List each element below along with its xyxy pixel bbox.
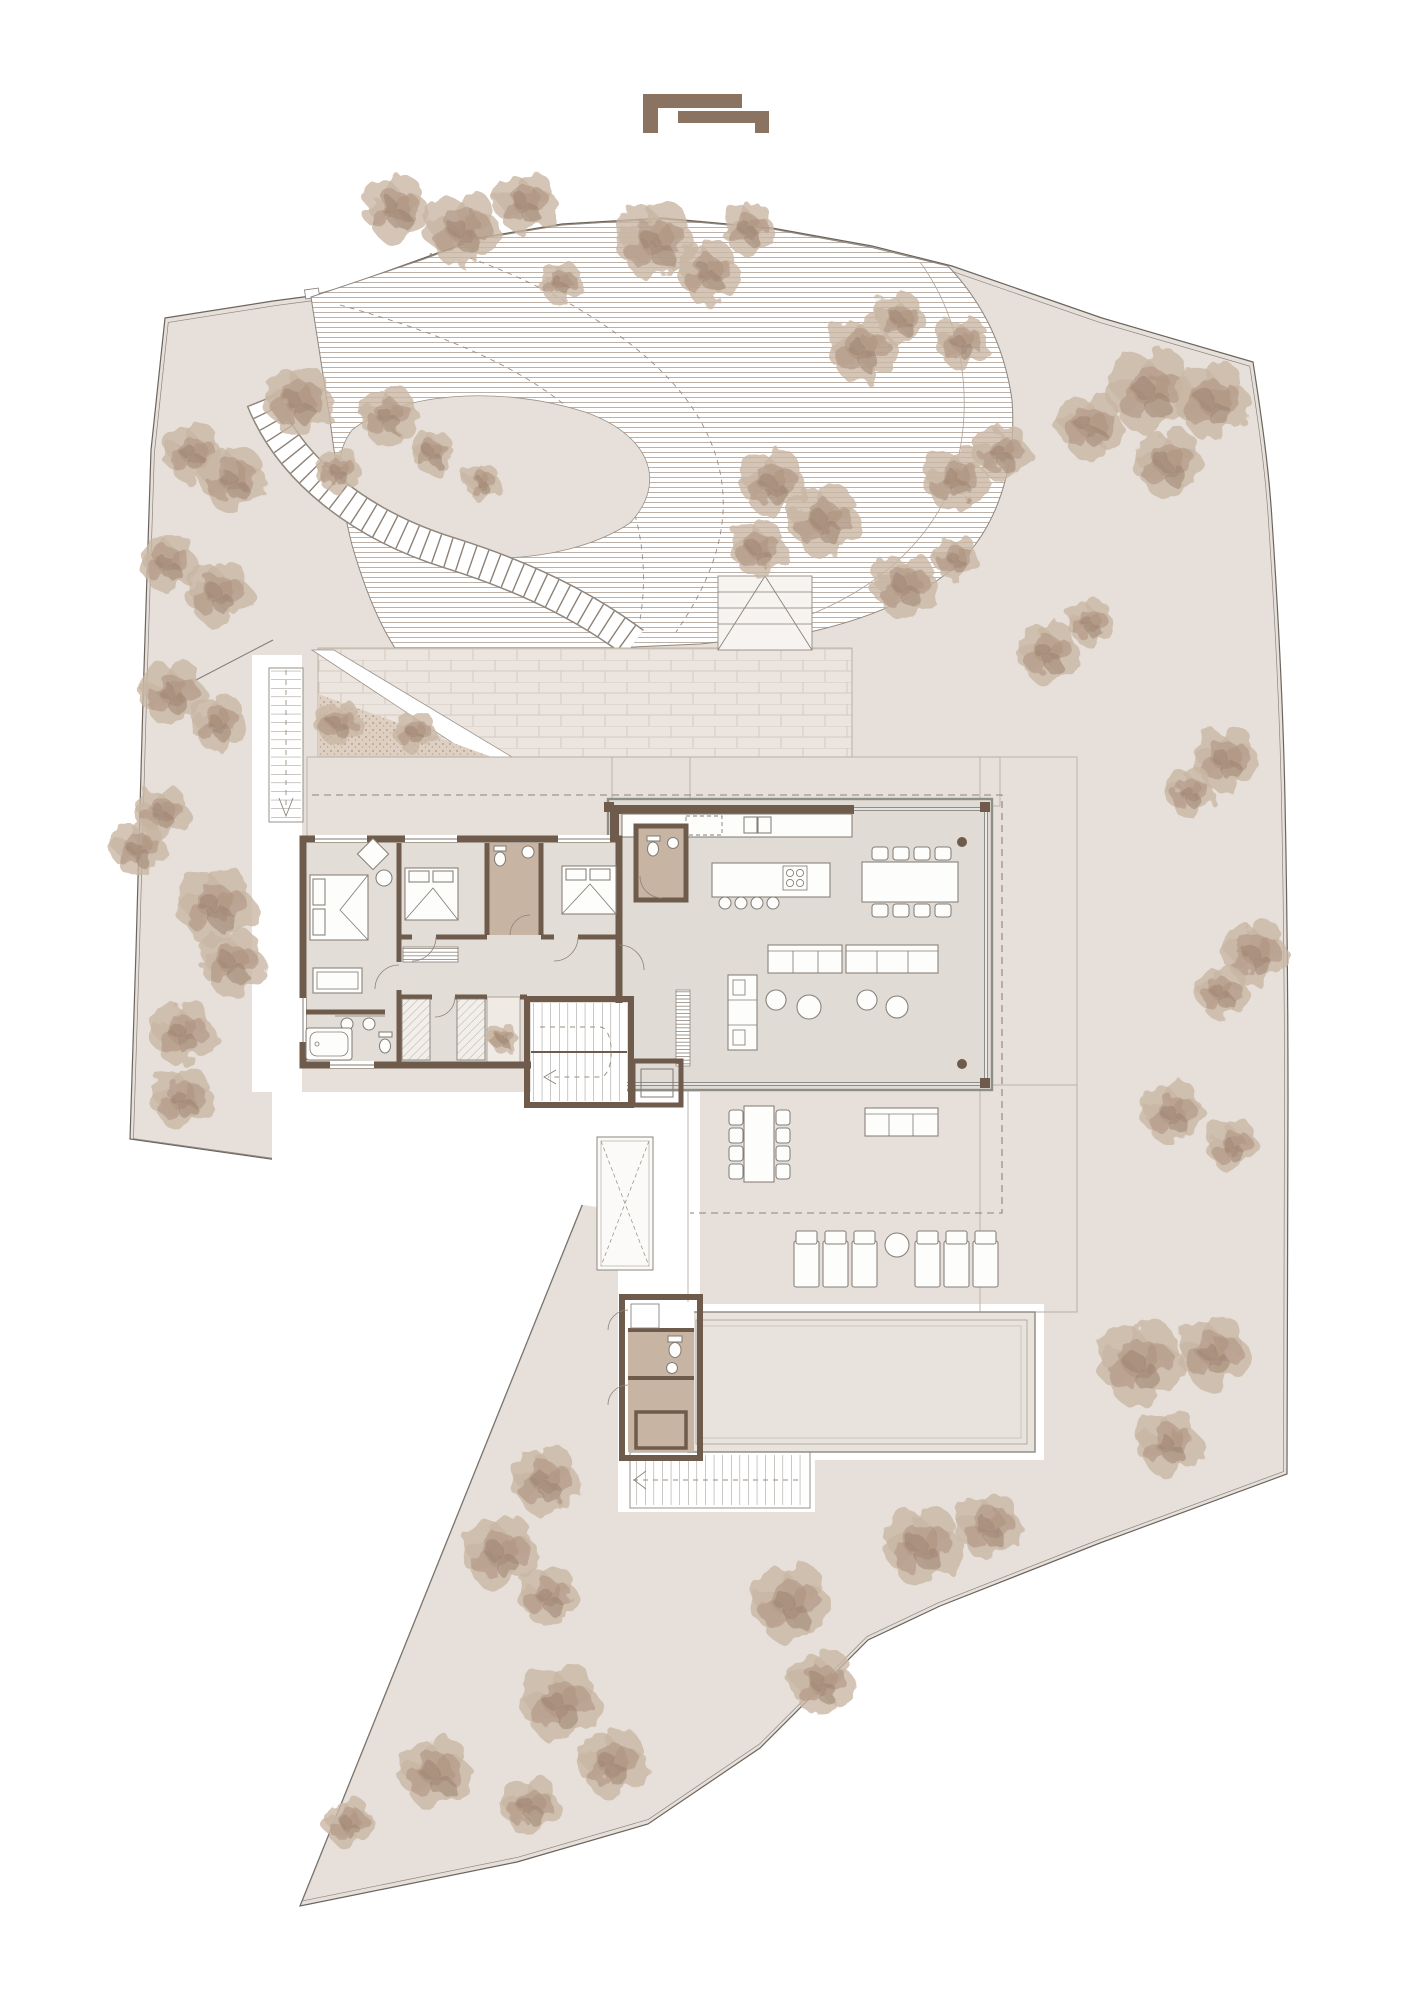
pouf	[766, 990, 786, 1010]
chair	[729, 1110, 743, 1125]
chair	[776, 1164, 790, 1179]
kitchen-sink	[758, 817, 771, 833]
sink-icon	[667, 1363, 678, 1374]
louver-screen	[676, 990, 690, 1066]
toilet-icon	[648, 842, 659, 856]
sun-lounger	[794, 1231, 819, 1287]
chair	[914, 847, 930, 860]
pouf	[886, 996, 908, 1018]
chair	[729, 1146, 743, 1161]
wardrobe	[457, 999, 485, 1060]
chair	[935, 904, 951, 917]
chair	[729, 1128, 743, 1143]
indoor-dining-table	[862, 862, 958, 902]
tree	[494, 172, 559, 235]
chair	[776, 1128, 790, 1143]
column	[957, 1059, 967, 1069]
floor-plan-drawing	[0, 0, 1414, 2000]
toilet-icon	[380, 1039, 391, 1053]
sofa-group	[768, 945, 938, 973]
site-plan-canvas	[0, 0, 1414, 2000]
roof-skylight	[718, 576, 812, 650]
bed	[562, 866, 616, 914]
outdoor-sofa	[865, 1108, 938, 1136]
bench	[403, 947, 458, 962]
pouf	[857, 990, 877, 1010]
sun-lounger	[823, 1231, 848, 1287]
chair	[872, 847, 888, 860]
living-pavilion	[604, 799, 992, 1090]
sun-lounger	[944, 1231, 969, 1287]
kitchen-stool	[751, 897, 763, 909]
entry-wc	[636, 826, 686, 900]
kitchen-stool	[735, 897, 747, 909]
chair	[729, 1164, 743, 1179]
chair	[935, 847, 951, 860]
interior-stair	[527, 999, 631, 1105]
swimming-pool	[688, 1312, 1035, 1452]
sun-lounger	[852, 1231, 877, 1287]
sun-lounger	[915, 1231, 940, 1287]
tv-unit	[728, 975, 757, 1050]
chair	[776, 1110, 790, 1125]
sink-icon	[363, 1018, 375, 1030]
chair	[776, 1146, 790, 1161]
chair	[872, 904, 888, 917]
sun-lounger	[973, 1231, 998, 1287]
pouf	[797, 995, 821, 1019]
chair	[893, 847, 909, 860]
kitchen-sink	[744, 817, 757, 833]
toilet-icon	[668, 1336, 682, 1358]
toilet-icon	[647, 836, 660, 841]
light-well	[597, 1137, 653, 1270]
exterior-stair-west	[269, 668, 303, 822]
bed	[405, 868, 458, 920]
sink-icon	[668, 838, 679, 849]
kitchen-island	[712, 863, 830, 897]
kitchen-stool	[719, 897, 731, 909]
brand-logo	[643, 94, 769, 133]
wardrobe	[402, 999, 430, 1060]
outdoor-dining-table	[744, 1106, 774, 1182]
pool-house	[608, 1297, 700, 1458]
bed	[310, 875, 368, 940]
column	[957, 837, 967, 847]
kitchen-stool	[767, 897, 779, 909]
tree	[362, 176, 430, 242]
chair	[893, 904, 909, 917]
lounger-side-table	[885, 1233, 909, 1257]
chair	[914, 904, 930, 917]
